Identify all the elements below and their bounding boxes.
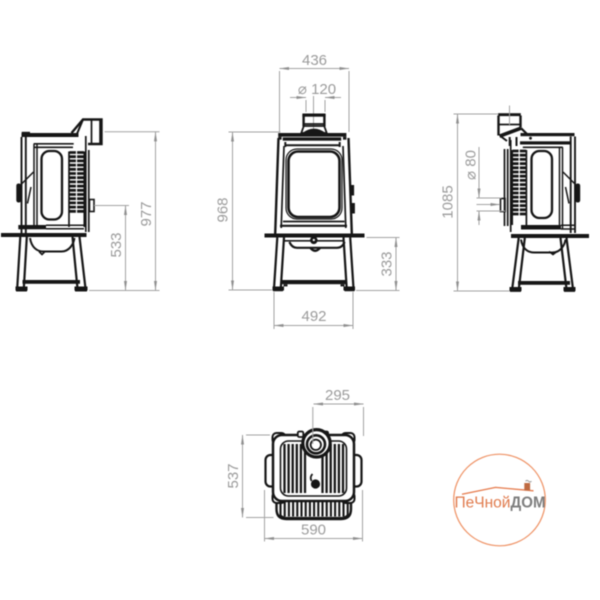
svg-text:537: 537 — [225, 463, 242, 488]
svg-text:1085: 1085 — [440, 185, 457, 218]
svg-text:333: 333 — [379, 251, 396, 276]
svg-text:436: 436 — [302, 52, 327, 69]
svg-text:⌀ 80: ⌀ 80 — [463, 150, 480, 180]
svg-text:968: 968 — [215, 197, 232, 222]
svg-text:590: 590 — [301, 522, 326, 539]
svg-text:ДОМ: ДОМ — [511, 495, 546, 512]
svg-text:⌀ 120: ⌀ 120 — [298, 81, 336, 98]
svg-text:492: 492 — [301, 308, 326, 325]
svg-text:ПеЧной: ПеЧной — [455, 495, 511, 512]
svg-text:533: 533 — [108, 232, 125, 257]
svg-text:977: 977 — [138, 201, 155, 226]
svg-text:295: 295 — [325, 387, 350, 404]
